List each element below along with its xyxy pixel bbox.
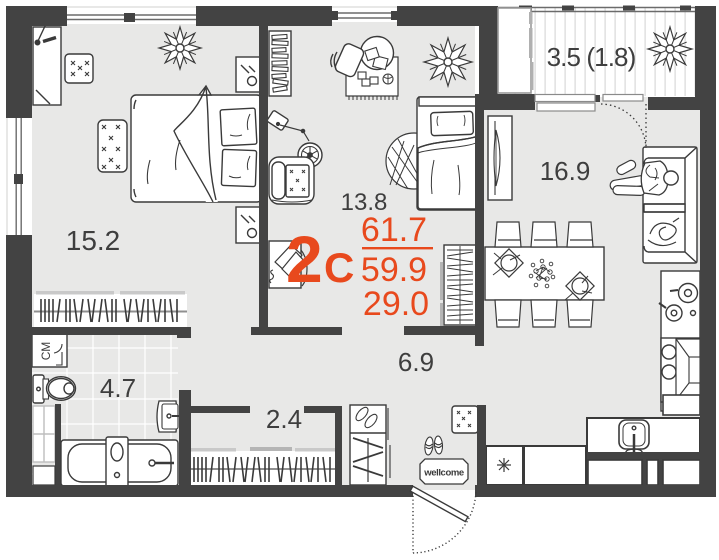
svg-text:15.2: 15.2 bbox=[66, 225, 121, 256]
svg-text:16.9: 16.9 bbox=[540, 156, 591, 186]
svg-text:29.0: 29.0 bbox=[363, 285, 429, 323]
svg-text:С: С bbox=[324, 244, 354, 291]
svg-text:СМ: СМ bbox=[39, 342, 53, 361]
svg-text:3.5 (1.8): 3.5 (1.8) bbox=[547, 42, 636, 72]
svg-text:2.4: 2.4 bbox=[266, 404, 302, 434]
svg-text:2: 2 bbox=[286, 222, 323, 296]
svg-text:61.7: 61.7 bbox=[361, 211, 427, 249]
svg-text:wellcome: wellcome bbox=[423, 468, 464, 479]
svg-text:6.9: 6.9 bbox=[398, 347, 434, 377]
svg-text:59.9: 59.9 bbox=[361, 251, 427, 289]
svg-text:4.7: 4.7 bbox=[100, 373, 136, 403]
